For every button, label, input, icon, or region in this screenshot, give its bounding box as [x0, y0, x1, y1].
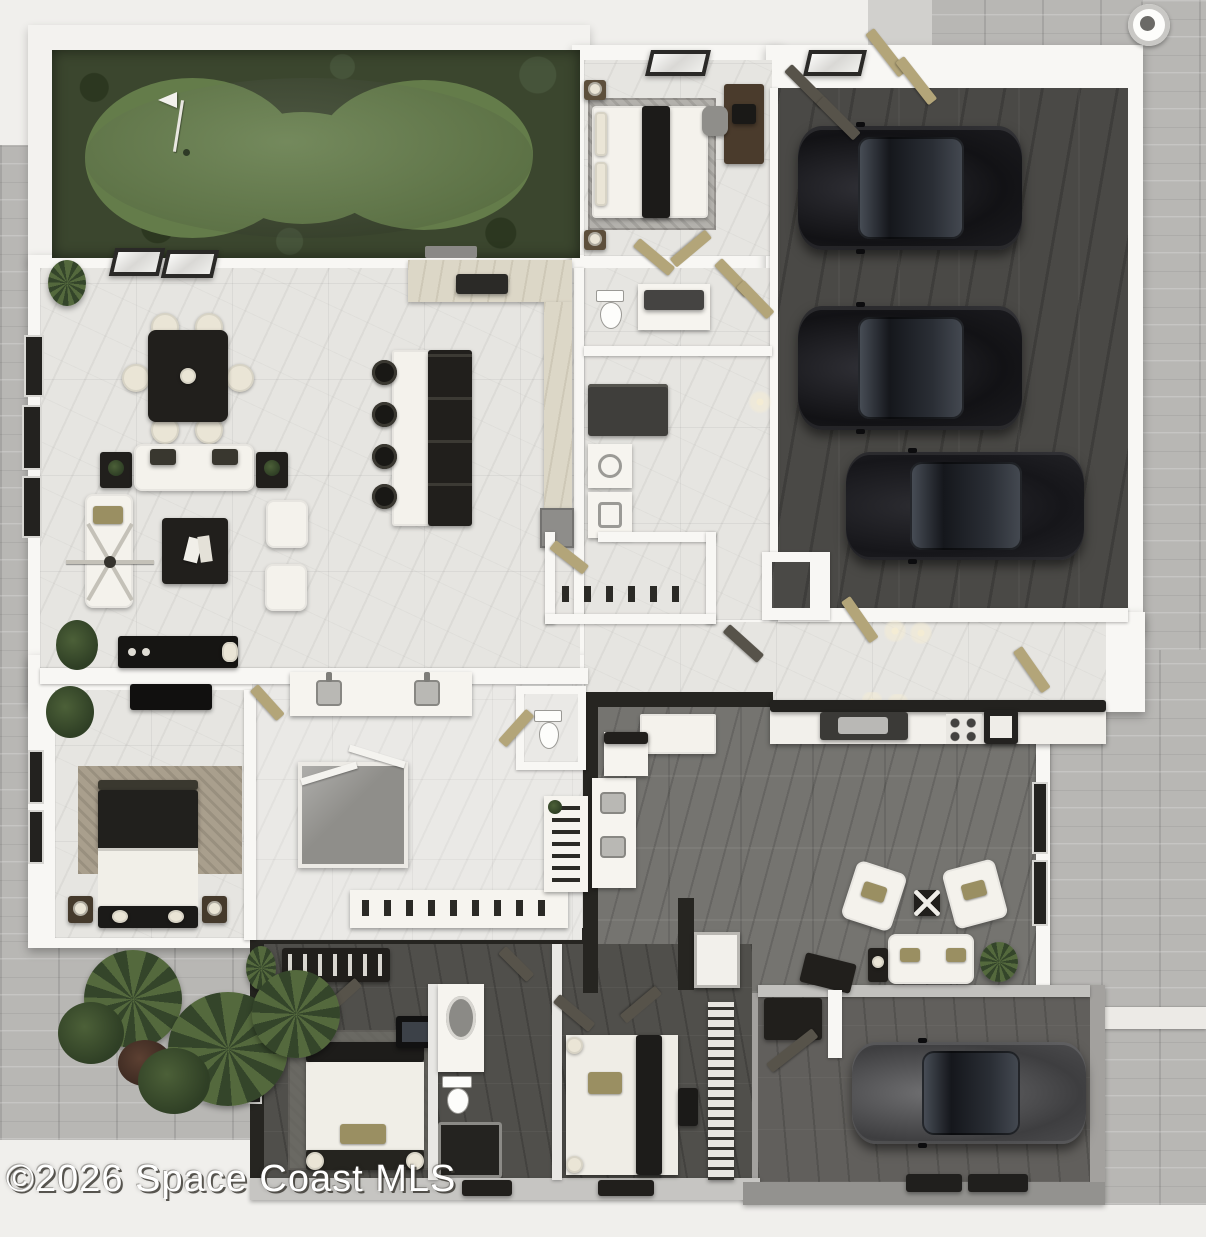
bench-pillow — [168, 910, 184, 923]
mini-fridge-door — [990, 716, 1012, 738]
guest-desk-laptop — [732, 104, 756, 124]
master-wall-tv — [130, 684, 212, 710]
bonus-top-left-wall — [583, 692, 773, 707]
master-lamp — [73, 901, 88, 916]
bar-stool — [372, 444, 397, 469]
black-sedan — [846, 452, 1084, 560]
coupe-mirror — [918, 1143, 927, 1148]
dining-chair — [122, 364, 150, 392]
dining-centerpiece — [180, 368, 196, 384]
palm-tree — [252, 970, 340, 1058]
suv-mirror — [856, 302, 865, 307]
laundry-counter — [588, 384, 668, 436]
suv-glass — [858, 317, 963, 419]
paver-driveway-right — [1141, 0, 1206, 650]
coupe-mirror — [918, 1038, 927, 1043]
window-master-1 — [28, 750, 44, 804]
master-sink-1 — [316, 680, 342, 706]
gray-coupe — [852, 1042, 1086, 1144]
shrub — [46, 686, 94, 738]
guest-desk-chair — [702, 106, 728, 136]
bed4-runner — [636, 1035, 662, 1175]
closet-plant — [548, 800, 562, 814]
garage2-pillar — [828, 990, 842, 1058]
bar-sink — [600, 792, 626, 814]
putting-green-shading — [85, 78, 533, 238]
sedan-mirror — [908, 559, 917, 564]
bar-stool — [372, 484, 397, 509]
hanging-clothes — [552, 806, 580, 882]
accent-table — [914, 890, 940, 916]
suv-mirror — [856, 122, 865, 127]
media-console-knobs — [128, 648, 136, 656]
window-master-2 — [28, 810, 44, 864]
bar-sink — [600, 836, 626, 858]
wing-door-mat — [598, 1180, 654, 1196]
kitchen-bench — [425, 246, 477, 258]
shrub — [138, 1048, 210, 1114]
bonus-cabinet-top — [604, 732, 648, 744]
hall-light — [884, 620, 906, 642]
dining-chair — [226, 364, 254, 392]
wall-masterbed-bath — [244, 690, 256, 940]
skylight-guest-bedroom — [645, 50, 711, 76]
bath3-toilet-tank — [442, 1076, 472, 1088]
bonus-potted-palm — [980, 942, 1018, 982]
washer-door — [598, 454, 622, 478]
wall-bath-divider — [584, 346, 772, 356]
sofa-cushion — [212, 449, 238, 465]
skylight-deck-left — [109, 248, 165, 276]
kitchen-island-cabinets — [428, 350, 472, 526]
bonus-wall-stub — [678, 898, 694, 990]
guest-bed-pillow — [595, 162, 607, 206]
bar-stool — [372, 360, 397, 385]
golf-hole — [183, 149, 190, 156]
side-table-plant — [264, 460, 280, 476]
side-table-plant — [108, 460, 124, 476]
hall-light — [910, 622, 932, 644]
bench-pillow — [112, 910, 128, 923]
master-sink-2 — [414, 680, 440, 706]
kitchen-counter-side — [544, 302, 572, 508]
pantry-wall-right — [706, 532, 716, 624]
garage2-threshold-mat — [906, 1174, 962, 1192]
guest-toilet-tank — [596, 290, 624, 302]
bonus-closet — [640, 714, 716, 754]
bed3-throw-pillow — [340, 1124, 386, 1144]
media-console — [118, 636, 238, 668]
fan-hub — [104, 556, 116, 568]
skylight-deck-right — [161, 250, 219, 278]
wing-door-mat — [462, 1180, 512, 1196]
open-door-leaf — [694, 932, 740, 988]
master-toilet-tank — [534, 710, 562, 722]
window-living-1 — [24, 335, 44, 397]
ceiling-fan-icon — [66, 518, 154, 606]
master-bed-sheet — [98, 848, 198, 906]
loveseat-pillow — [946, 948, 966, 962]
guest-desk — [724, 84, 764, 164]
black-suv-2 — [798, 306, 1022, 430]
mls-watermark: ©2026 Space Coast MLS — [6, 1158, 456, 1201]
garage-storage-floor — [772, 562, 810, 608]
sedan-mirror — [908, 448, 917, 453]
shoe-row — [362, 900, 558, 916]
armchair-1 — [266, 500, 308, 548]
guest-bed-pillow — [595, 112, 607, 156]
suv-mirror — [856, 249, 865, 254]
dryer-door — [598, 502, 622, 528]
roof-vent-hole — [1140, 16, 1155, 31]
sofa-cushion — [150, 449, 176, 465]
guest-vanity-counter — [644, 290, 704, 310]
kitchenette-sink — [838, 717, 888, 734]
media-console-knobs — [142, 648, 150, 656]
bed4-finial — [566, 1037, 583, 1054]
golf-flag-icon — [158, 92, 177, 108]
wall-garage-hall — [778, 608, 1128, 622]
master-bed-comforter — [98, 790, 198, 848]
sedan-glass — [910, 462, 1022, 551]
window-living-2 — [22, 405, 42, 470]
shrub — [58, 1002, 124, 1064]
coupe-glass — [922, 1051, 1020, 1135]
guest-lamp — [588, 232, 602, 246]
armchair-2 — [265, 564, 307, 611]
black-suv-1 — [798, 126, 1022, 250]
console-decor-vase — [222, 642, 238, 662]
suv-mirror — [856, 429, 865, 434]
side-table-decor — [872, 956, 884, 968]
single-garage-top-wall — [758, 985, 1090, 997]
bedroom4-closet-shelves — [708, 1002, 734, 1180]
walkway-strip-right — [1100, 1007, 1206, 1029]
pantry-wall-top — [598, 532, 716, 542]
pantry-shelf-items — [562, 586, 694, 602]
wine-rack — [946, 714, 982, 744]
bedroom4-hamper — [678, 1088, 698, 1126]
bath3-mirror — [446, 996, 476, 1040]
window-bonus-1 — [1032, 782, 1048, 854]
floor-plan-render: ©2026 Space Coast MLS — [0, 0, 1206, 1237]
window-bonus-2 — [1032, 860, 1048, 926]
faucet — [326, 672, 332, 682]
cooktop — [456, 274, 508, 294]
wing-tv-screen — [402, 1022, 428, 1042]
pantry-wall-bottom — [545, 614, 716, 624]
master-headboard — [98, 780, 198, 790]
kitchen-island-top — [392, 350, 430, 526]
bed4-finial — [566, 1156, 583, 1173]
hall-ceiling-light — [748, 390, 772, 414]
guest-lamp — [588, 82, 602, 96]
skylight-garage-entry — [803, 50, 867, 76]
master-lamp — [207, 901, 222, 916]
faucet — [424, 672, 430, 682]
bar-stool — [372, 402, 397, 427]
bed4-throw-pillow — [588, 1072, 622, 1094]
garage2-threshold-mat — [968, 1174, 1028, 1192]
shrub — [56, 620, 98, 670]
window-living-3 — [22, 476, 42, 538]
bath3-wall-left — [428, 984, 438, 1180]
loveseat-pillow — [900, 948, 920, 962]
guest-bed-runner — [642, 106, 670, 218]
bath3-wall-right — [552, 944, 562, 1180]
palm-tree — [48, 260, 86, 306]
suv-glass — [858, 137, 963, 239]
kitchenette-counter-top — [770, 700, 1106, 712]
